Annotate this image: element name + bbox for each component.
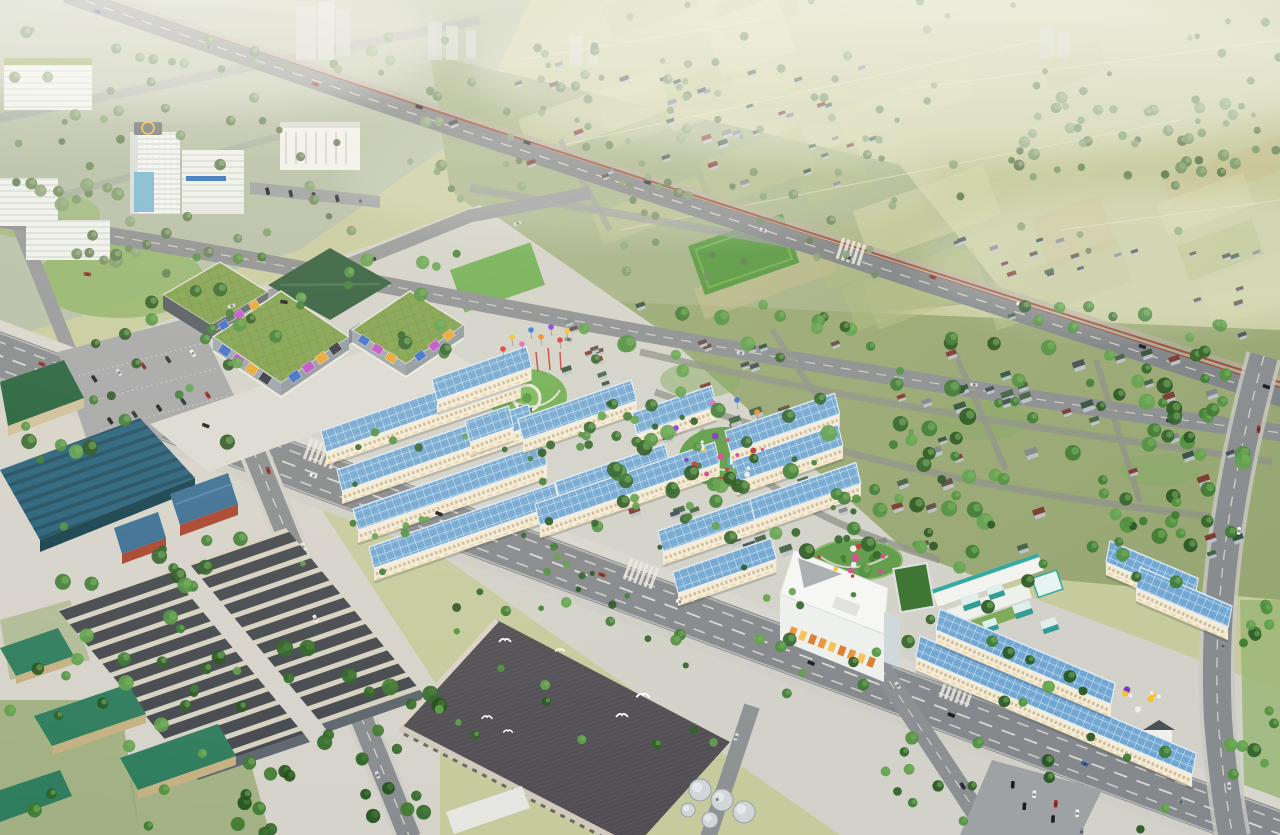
- sunlight-overlay: [0, 0, 1280, 835]
- aerial-render-image: [0, 0, 1280, 835]
- atmosphere-haze: [0, 0, 1280, 835]
- masterplan-scene: [0, 0, 1280, 835]
